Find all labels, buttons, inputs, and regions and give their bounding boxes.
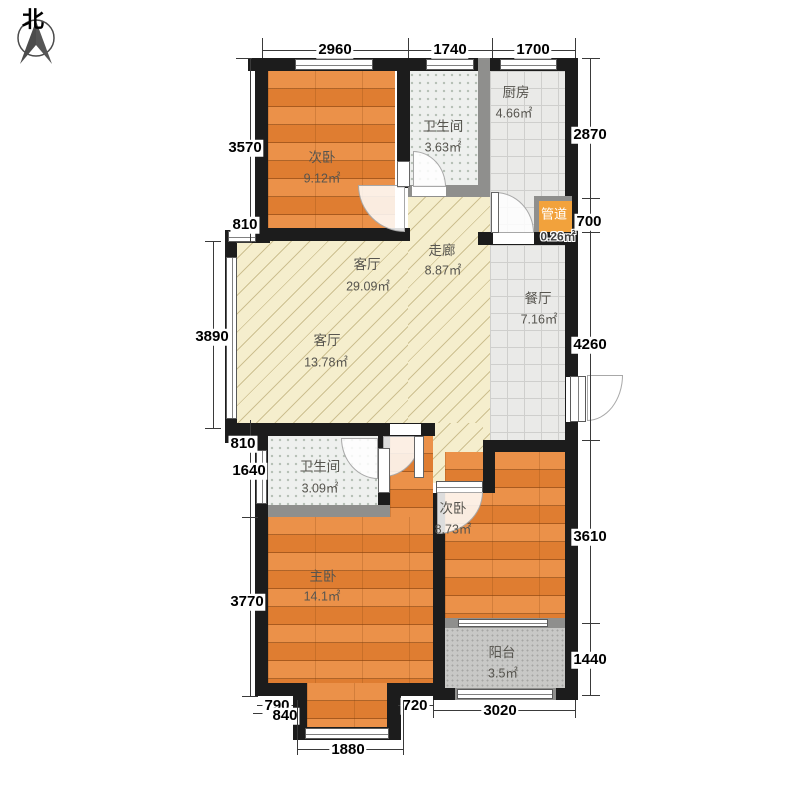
dim-tick <box>205 428 221 429</box>
dim-tick <box>433 700 434 718</box>
window-bath-top <box>426 59 474 70</box>
dim-tick <box>242 696 258 697</box>
dim-left-3: 810 <box>228 436 257 453</box>
wall-master-bottom-r <box>401 683 433 696</box>
door-leaf-bedroom-top <box>397 161 410 187</box>
label-living-lower: 客厅 <box>314 331 341 351</box>
dim-tick <box>236 58 252 59</box>
dim-tick <box>582 695 600 696</box>
dim-top-0: 2960 <box>316 42 353 59</box>
door-leaf-bath-lower <box>378 448 390 493</box>
dim-right-1: 700 <box>574 214 603 231</box>
door-leaf-entry <box>570 376 586 422</box>
label-living-upper: 客厅 <box>354 255 381 275</box>
floor-dining <box>490 245 565 440</box>
area-kitchen: 4.66㎡ <box>496 103 533 122</box>
dim-tick <box>408 38 409 58</box>
dim-bottom-2: 720 <box>400 698 429 715</box>
floor-master <box>268 517 433 683</box>
dim-tick <box>205 241 221 242</box>
label-bedroom-top: 次卧 <box>309 148 336 168</box>
label-dining: 餐厅 <box>525 289 552 309</box>
dim-tick <box>492 38 493 58</box>
dim-tick <box>582 623 600 624</box>
dim-tick <box>262 38 263 58</box>
dim-left-0: 3570 <box>226 140 263 157</box>
dim-left-2: 3890 <box>193 329 230 346</box>
dim-tick <box>297 700 298 755</box>
floor-master-bay <box>307 683 387 727</box>
window-balcony <box>457 689 553 699</box>
area-bath-top: 3.63㎡ <box>425 137 462 156</box>
wall-bedroom-bottom <box>255 228 410 241</box>
dim-tick <box>582 232 600 233</box>
area-bath-lower: 3.09㎡ <box>302 478 339 497</box>
opening-bath-top <box>412 186 446 196</box>
north-label: 北 <box>22 2 44 34</box>
area-bedroom-top: 9.12㎡ <box>304 168 341 187</box>
wall-nook-divider <box>483 440 495 493</box>
floor-corridor <box>408 197 490 423</box>
label-balcony: 阳台 <box>489 643 516 663</box>
dim-left-1: 810 <box>230 217 259 234</box>
door-leaf-kitchen <box>491 192 499 233</box>
dim-bottom-1: 840 <box>270 708 299 725</box>
wall-bath-lower-bottom <box>268 505 390 517</box>
dim-tick <box>575 38 576 58</box>
label-bath-lower: 卫生间 <box>300 457 341 477</box>
area-living-upper: 29.09㎡ <box>346 276 390 295</box>
window-bedroom-top <box>295 59 373 70</box>
dim-tick <box>582 198 600 199</box>
floor-corridor-stub2 <box>483 423 490 440</box>
area-bedroom-lower: 8.73㎡ <box>435 519 472 538</box>
dim-bottom-3: 1880 <box>329 742 366 759</box>
opening-kitchen <box>493 233 534 244</box>
label-master: 主卧 <box>310 567 337 587</box>
dim-left-4: 1640 <box>230 463 267 480</box>
area-master: 14.1㎡ <box>304 586 341 605</box>
window-bay <box>305 728 389 739</box>
dim-left-5: 3770 <box>228 594 265 611</box>
dim-tick <box>582 58 600 59</box>
dim-right-0: 2870 <box>571 127 608 144</box>
dim-bottom-4: 3020 <box>481 703 518 720</box>
wall-balcony-corner-r <box>556 688 578 700</box>
dim-top-1: 1740 <box>431 42 468 59</box>
door-leaf-master <box>414 436 424 478</box>
label-corridor: 走廊 <box>429 241 456 261</box>
label-bath-top: 卫生间 <box>423 117 464 137</box>
dim-right-2: 4260 <box>571 337 608 354</box>
window-kitchen-top <box>500 59 557 70</box>
dim-tick <box>242 517 258 518</box>
opening-master <box>390 424 421 435</box>
door-arc-entry <box>587 375 623 421</box>
wall-master-bottom-l <box>255 683 293 696</box>
area-balcony: 3.5㎡ <box>488 663 518 682</box>
wall-balcony-corner-l <box>433 688 455 700</box>
label-duct: 管道 <box>541 204 567 223</box>
dim-tick <box>575 700 576 718</box>
dim-line-right <box>590 58 591 695</box>
area-corridor: 8.87㎡ <box>425 260 462 279</box>
area-dining: 7.16㎡ <box>521 309 558 328</box>
floor-plan: 北 <box>0 0 800 800</box>
dim-right-3: 3610 <box>571 529 608 546</box>
dim-tick <box>403 700 404 755</box>
wall-bath-kitchen <box>478 58 490 197</box>
label-kitchen: 厨房 <box>503 83 530 103</box>
dim-right-4: 1440 <box>571 652 608 669</box>
label-bedroom-lower: 次卧 <box>440 499 467 519</box>
area-living-lower: 13.78㎡ <box>304 352 348 371</box>
area-duct: 0.26㎡ <box>540 228 575 245</box>
dim-tick <box>236 242 252 243</box>
window-balcony-door <box>458 619 548 627</box>
dim-tick <box>582 440 600 441</box>
dim-top-2: 1700 <box>514 42 551 59</box>
